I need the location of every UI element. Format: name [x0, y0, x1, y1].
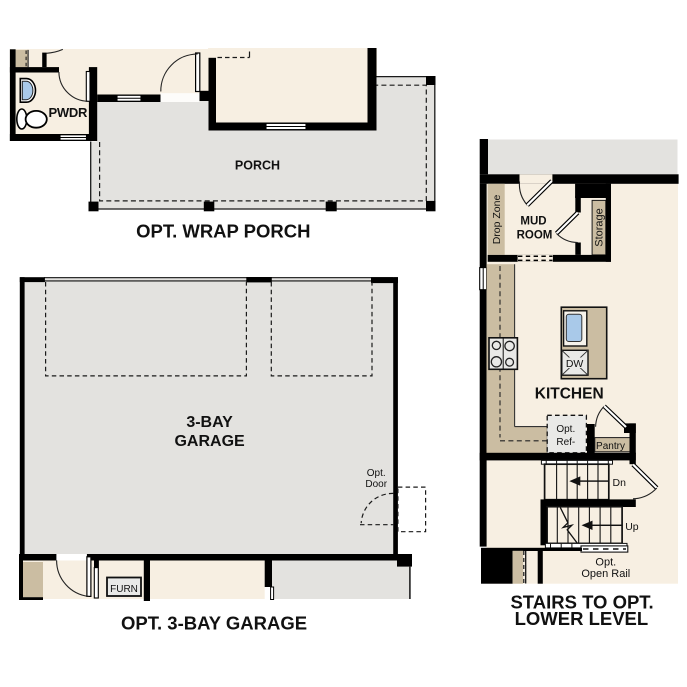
svg-text:Up: Up	[625, 521, 639, 533]
svg-text:OPT. WRAP PORCH: OPT. WRAP PORCH	[136, 221, 310, 242]
svg-text:MUD: MUD	[520, 216, 546, 228]
svg-text:LOWER LEVEL: LOWER LEVEL	[515, 608, 649, 629]
svg-text:KITCHEN: KITCHEN	[535, 385, 604, 402]
svg-text:Opt.: Opt.	[367, 468, 386, 479]
svg-text:FURN: FURN	[110, 584, 138, 595]
svg-text:PWDR: PWDR	[49, 105, 88, 120]
svg-text:Storage: Storage	[593, 208, 605, 247]
svg-text:PORCH: PORCH	[235, 158, 280, 172]
svg-text:Opt.: Opt.	[556, 424, 575, 435]
svg-text:DW: DW	[566, 358, 584, 370]
svg-text:Door: Door	[365, 479, 387, 490]
svg-text:OPT. 3-BAY GARAGE: OPT. 3-BAY GARAGE	[121, 612, 307, 633]
svg-text:Pantry: Pantry	[596, 441, 625, 452]
svg-text:Drop Zone: Drop Zone	[491, 195, 503, 245]
svg-text:Ref-: Ref-	[556, 437, 575, 448]
svg-text:Opt.: Opt.	[595, 556, 616, 568]
svg-text:ROOM: ROOM	[517, 230, 553, 242]
svg-text:Dn: Dn	[613, 477, 627, 489]
svg-text:GARAGE: GARAGE	[174, 433, 245, 450]
svg-text:Open Rail: Open Rail	[581, 568, 630, 580]
svg-text:3-BAY: 3-BAY	[186, 414, 233, 431]
